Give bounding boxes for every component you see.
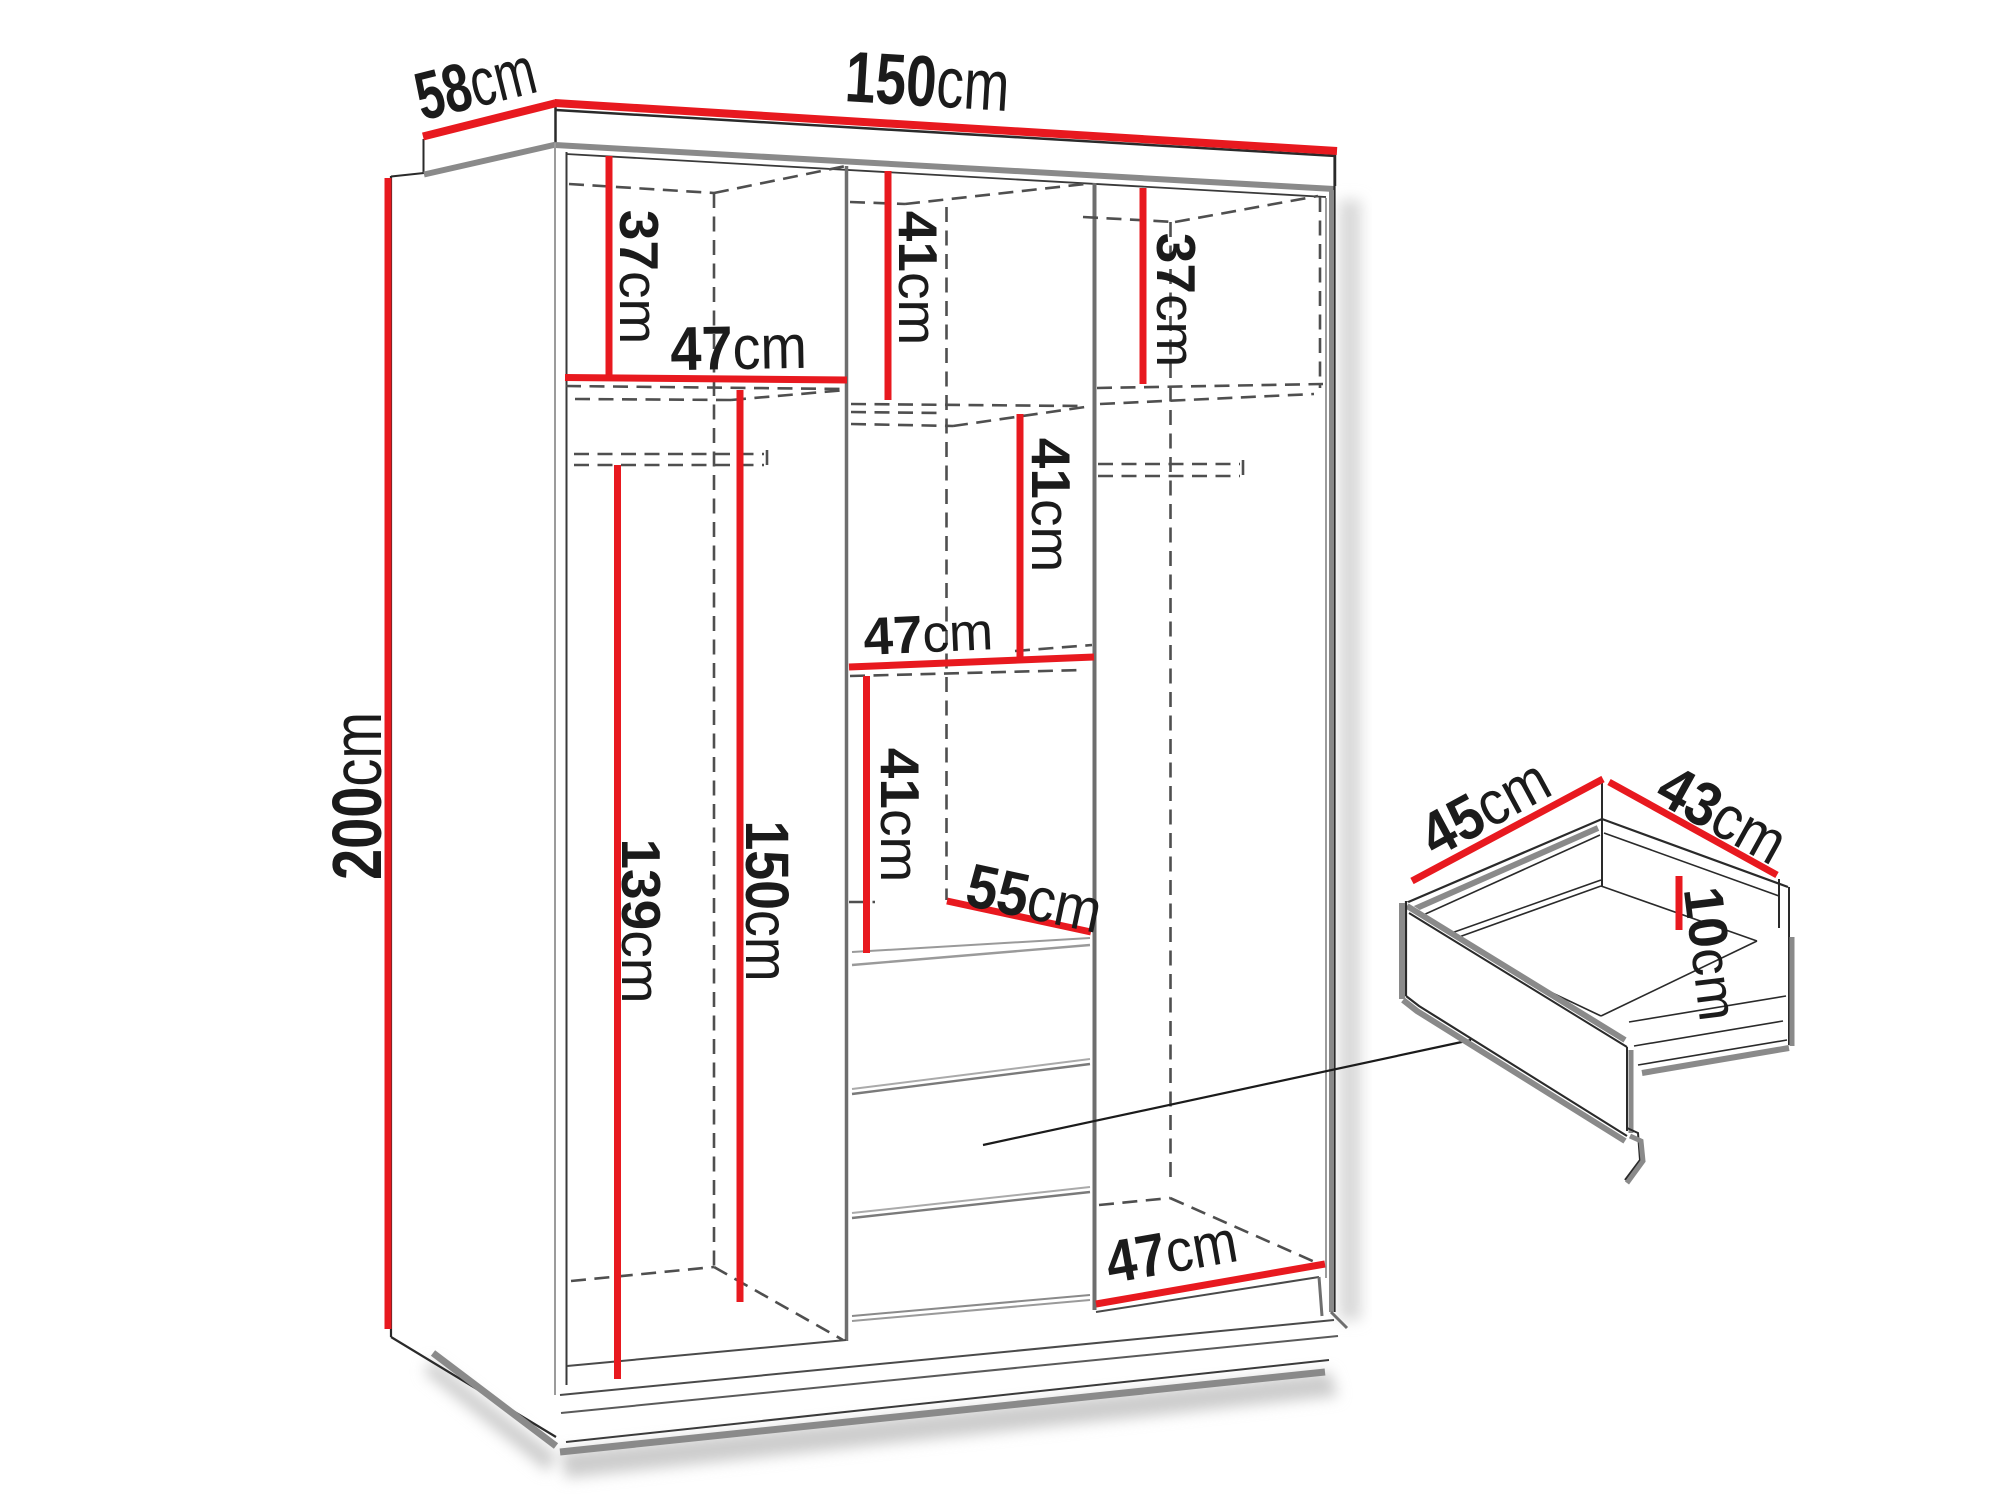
svg-text:37cm: 37cm [608, 210, 670, 345]
svg-text:200cm: 200cm [319, 712, 396, 880]
svg-text:47cm: 47cm [670, 313, 808, 384]
svg-text:150cm: 150cm [843, 36, 1012, 127]
svg-text:47cm: 47cm [862, 602, 994, 667]
svg-text:41cm: 41cm [869, 748, 931, 883]
svg-text:139cm: 139cm [610, 838, 672, 1003]
svg-text:41cm: 41cm [887, 211, 949, 346]
svg-text:37cm: 37cm [1145, 233, 1207, 368]
svg-text:41cm: 41cm [1020, 438, 1082, 573]
svg-text:150cm: 150cm [732, 820, 800, 981]
